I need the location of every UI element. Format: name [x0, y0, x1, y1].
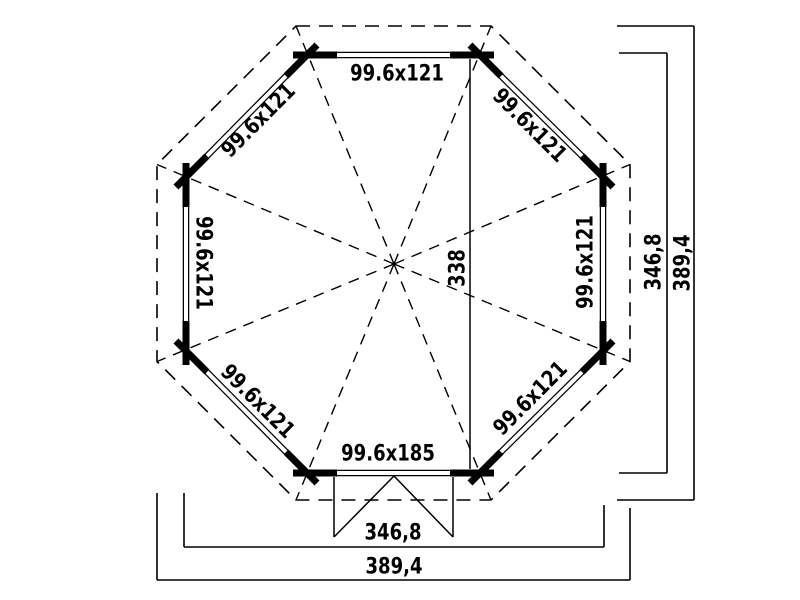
label-bottom-roof-width: 389,4 [365, 553, 422, 579]
label-wall-north-west: 99.6x121 [215, 77, 300, 162]
label-wall-south-west: 99.6x121 [216, 358, 301, 443]
label-wall-north-east: 99.6x121 [488, 82, 573, 167]
post-bar [470, 452, 501, 483]
label-wall-top: 99.6x121 [350, 60, 444, 86]
post-bar [176, 156, 207, 187]
post-bar [176, 341, 207, 372]
label-inner-span: 338 [444, 249, 470, 287]
post-bar [286, 45, 317, 76]
post-bar [582, 341, 613, 372]
post-bar [286, 452, 317, 483]
label-right-wall-width: 346,8 [640, 233, 666, 290]
label-right-roof-width: 389,4 [669, 234, 695, 291]
drawing-canvas: 99.6x121 99.6x121 99.6x121 99.6x121 99.6… [0, 0, 800, 600]
roof-hip-lines [157, 26, 630, 500]
labels: 99.6x121 99.6x121 99.6x121 99.6x121 99.6… [191, 60, 695, 579]
dimension-lines [157, 26, 694, 580]
label-wall-west: 99.6x121 [191, 216, 217, 310]
label-wall-front: 99.6x185 [341, 440, 435, 466]
gazebo-floor-plan: 99.6x121 99.6x121 99.6x121 99.6x121 99.6… [0, 0, 800, 600]
label-wall-east: 99.6x121 [572, 215, 598, 309]
label-bottom-wall-width: 346,8 [364, 519, 421, 545]
post-bar [470, 45, 501, 76]
